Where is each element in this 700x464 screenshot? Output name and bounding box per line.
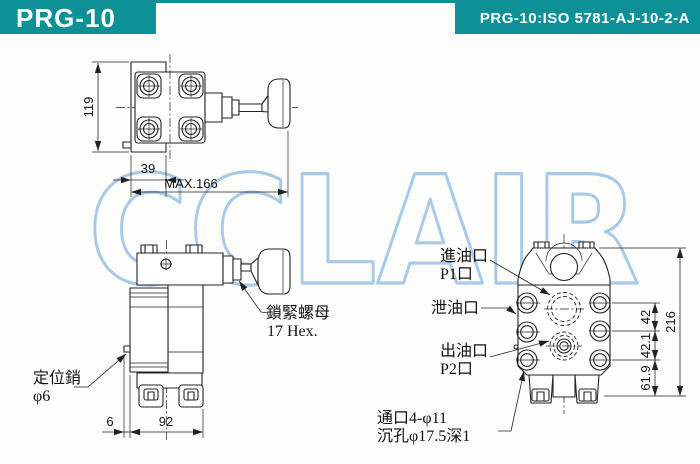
- dim-216: 216: [663, 311, 678, 333]
- label-outlet: 出油口: [440, 342, 488, 360]
- label-pin-diameter: φ6: [33, 388, 50, 405]
- adjust-knob-top: [268, 79, 290, 128]
- dim-max-166: MAX.166: [164, 176, 217, 191]
- front-view: 鎖緊螺母 17 Hex. 定位銷 φ6 6 92: [33, 240, 330, 440]
- dim-92: 92: [159, 414, 173, 429]
- label-drain: 泄油口: [431, 299, 479, 317]
- dim-6: 6: [106, 414, 113, 429]
- label-through-holes: 通口4-φ11: [377, 409, 447, 427]
- catalog-page: PRG-10 PRG-10:ISO 5781-AJ-10-2-A CCLAIR: [0, 0, 700, 464]
- dim-42-1: 42.1: [638, 333, 653, 358]
- label-pin: 定位銷: [33, 369, 81, 387]
- adjust-knob-front: [258, 249, 290, 294]
- label-inlet-port: P1口: [440, 266, 473, 283]
- label-lock-nut-size: 17 Hex.: [267, 323, 318, 340]
- dim-39: 39: [141, 161, 155, 176]
- dim-61-9: 61.9: [638, 365, 653, 390]
- technical-drawing: CCLAIR: [0, 0, 700, 464]
- locating-pin: [124, 346, 130, 352]
- label-lock-nut: 鎖緊螺母: [266, 304, 330, 322]
- knob-end-view: [551, 254, 578, 281]
- pin-hole: [514, 345, 518, 349]
- label-counterbore: 沉孔φ17.5深1: [377, 427, 470, 445]
- label-outlet-port: P2口: [440, 361, 473, 378]
- label-inlet: 進油口: [440, 247, 488, 265]
- dim-119: 119: [81, 97, 96, 118]
- dim-42: 42: [638, 310, 653, 324]
